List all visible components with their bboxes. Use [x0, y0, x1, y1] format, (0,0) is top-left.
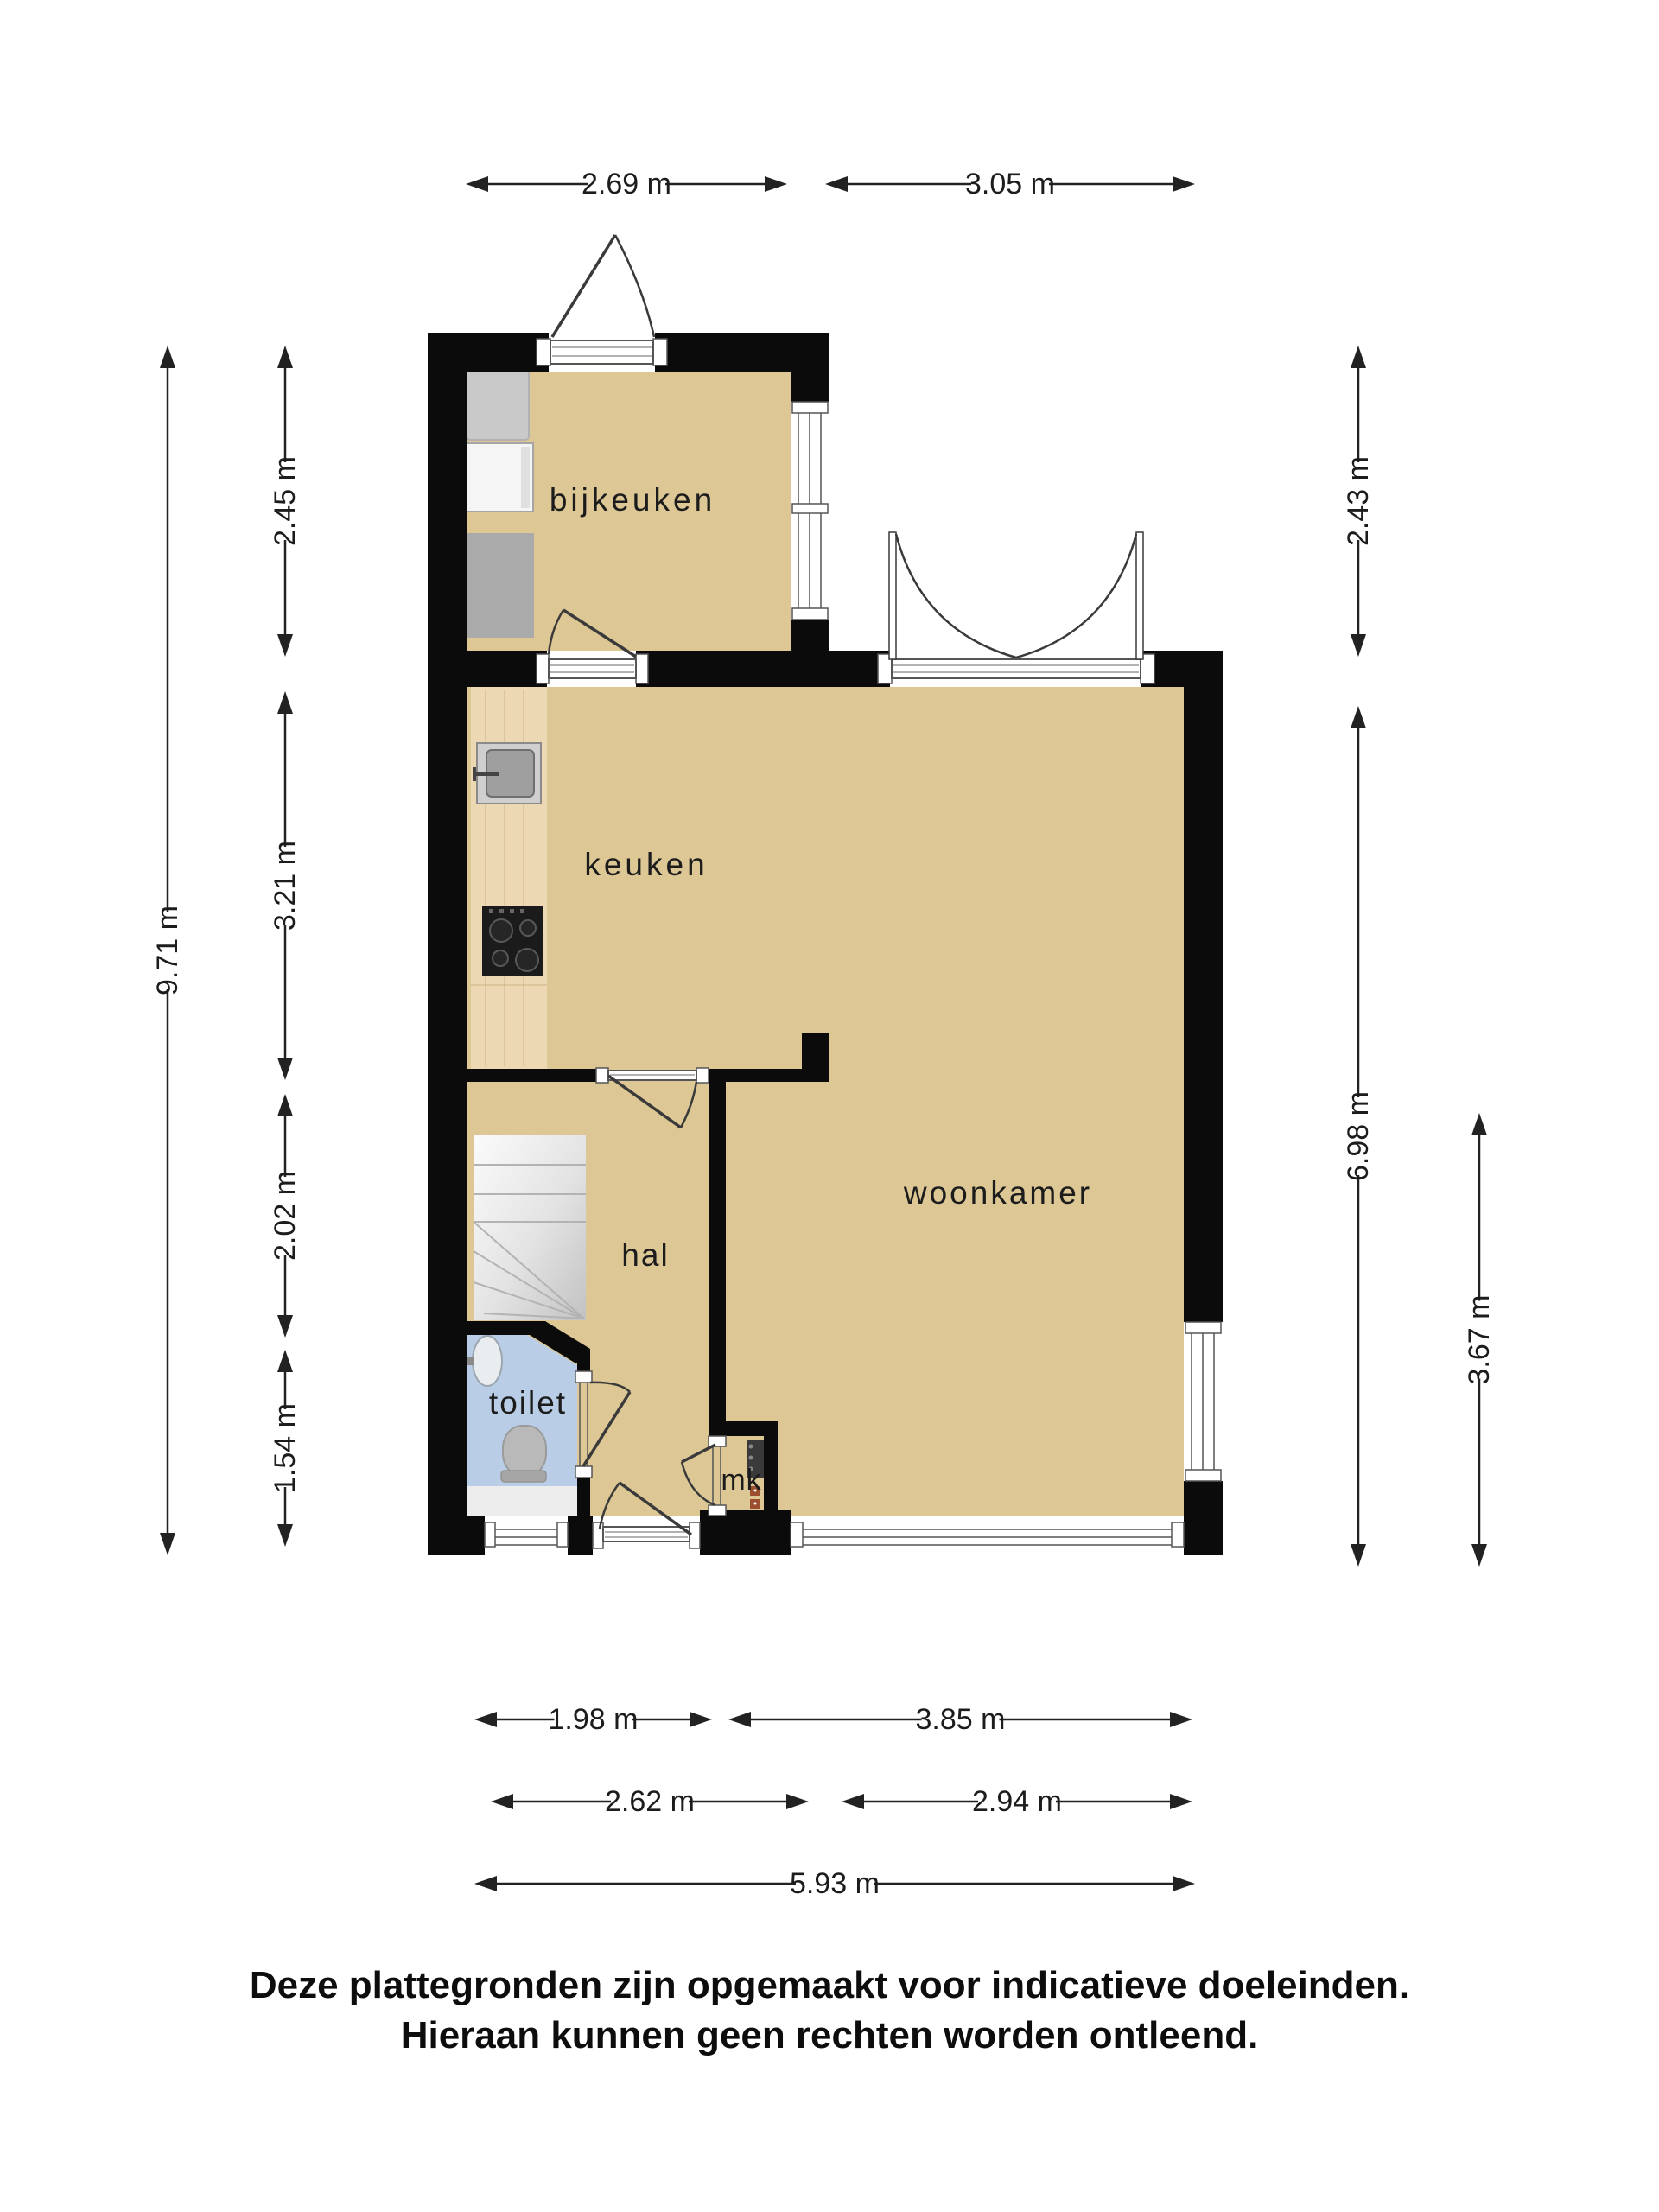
- stairs: [474, 1135, 586, 1320]
- woonkamer-front-window: [791, 1522, 1184, 1547]
- dimension-6.98m: 6.98 m: [1342, 706, 1375, 1567]
- dimension-3.21m: 3.21 m: [269, 691, 302, 1080]
- dim-label: 6.98 m: [1342, 1091, 1375, 1181]
- dim-label: 2.43 m: [1342, 456, 1375, 546]
- dim-label: 5.93 m: [790, 1867, 880, 1900]
- dimension-3.67m: 3.67 m: [1463, 1113, 1496, 1567]
- kitchen-sink-icon: [474, 743, 541, 804]
- floor-plan-page: bijkeukenkeukenwoonkamerhaltoiletmk 2.69…: [0, 0, 1659, 2212]
- fridge-appliance-icon: [467, 533, 534, 638]
- dimension-2.62m: 2.62 m: [491, 1785, 809, 1818]
- dimension-5.93m: 5.93 m: [474, 1867, 1195, 1900]
- dim-label: 3.05 m: [965, 168, 1055, 200]
- dim-label: 9.71 m: [151, 906, 184, 995]
- dim-label: 3.85 m: [916, 1703, 1006, 1736]
- disclaimer-line-1: Deze plattegronden zijn opgemaakt voor i…: [250, 1964, 1409, 2006]
- room-label-mk: mk: [721, 1464, 761, 1497]
- room-label-woonkamer: woonkamer: [903, 1175, 1092, 1211]
- dim-label: 1.98 m: [549, 1703, 639, 1736]
- dim-label: 2.62 m: [605, 1785, 695, 1818]
- dimension-2.02m: 2.02 m: [269, 1094, 302, 1338]
- disclaimer-line-2: Hieraan kunnen geen rechten worden ontle…: [401, 2014, 1259, 2056]
- room-label-toilet: toilet: [489, 1385, 567, 1421]
- woonkamer-side-window: [1184, 1322, 1223, 1481]
- dim-label: 3.21 m: [269, 841, 302, 931]
- dimension-2.94m: 2.94 m: [842, 1785, 1192, 1818]
- room-label-bijkeuken: bijkeuken: [550, 482, 715, 518]
- dim-label: 2.45 m: [269, 456, 302, 546]
- disclaimer: Deze plattegronden zijn opgemaakt voor i…: [250, 1964, 1409, 2056]
- washer-appliance-icon: [467, 370, 529, 440]
- dimension-1.98m: 1.98 m: [474, 1703, 712, 1736]
- bijkeuken-exterior-door: [537, 235, 667, 365]
- dim-label: 2.02 m: [269, 1171, 302, 1261]
- dim-label: 2.69 m: [582, 168, 671, 200]
- floor-plan: bijkeukenkeukenwoonkamerhaltoiletmk 2.69…: [0, 0, 1659, 2212]
- toilet-room: [467, 1335, 577, 1516]
- cooktop-icon: [482, 906, 543, 976]
- dimension-3.85m: 3.85 m: [728, 1703, 1192, 1736]
- toilet-window: [485, 1522, 568, 1547]
- toilet-bowl-icon: [501, 1426, 546, 1482]
- french-doors: [878, 532, 1154, 683]
- dimension-2.45m: 2.45 m: [269, 346, 302, 657]
- bijkeuken-window: [791, 402, 829, 620]
- dryer-appliance-icon: [467, 443, 533, 512]
- room-label-hal: hal: [621, 1237, 669, 1273]
- dimension-9.71m: 9.71 m: [151, 346, 184, 1555]
- dimension-1.54m: 1.54 m: [269, 1350, 302, 1547]
- dimension-3.05m: 3.05 m: [825, 168, 1195, 200]
- dim-label: 3.67 m: [1463, 1295, 1496, 1385]
- room-label-keuken: keuken: [584, 847, 708, 882]
- dimension-2.43m: 2.43 m: [1342, 346, 1375, 657]
- dim-label: 1.54 m: [269, 1403, 302, 1493]
- dim-label: 2.94 m: [972, 1785, 1062, 1818]
- dimension-2.69m: 2.69 m: [466, 168, 787, 200]
